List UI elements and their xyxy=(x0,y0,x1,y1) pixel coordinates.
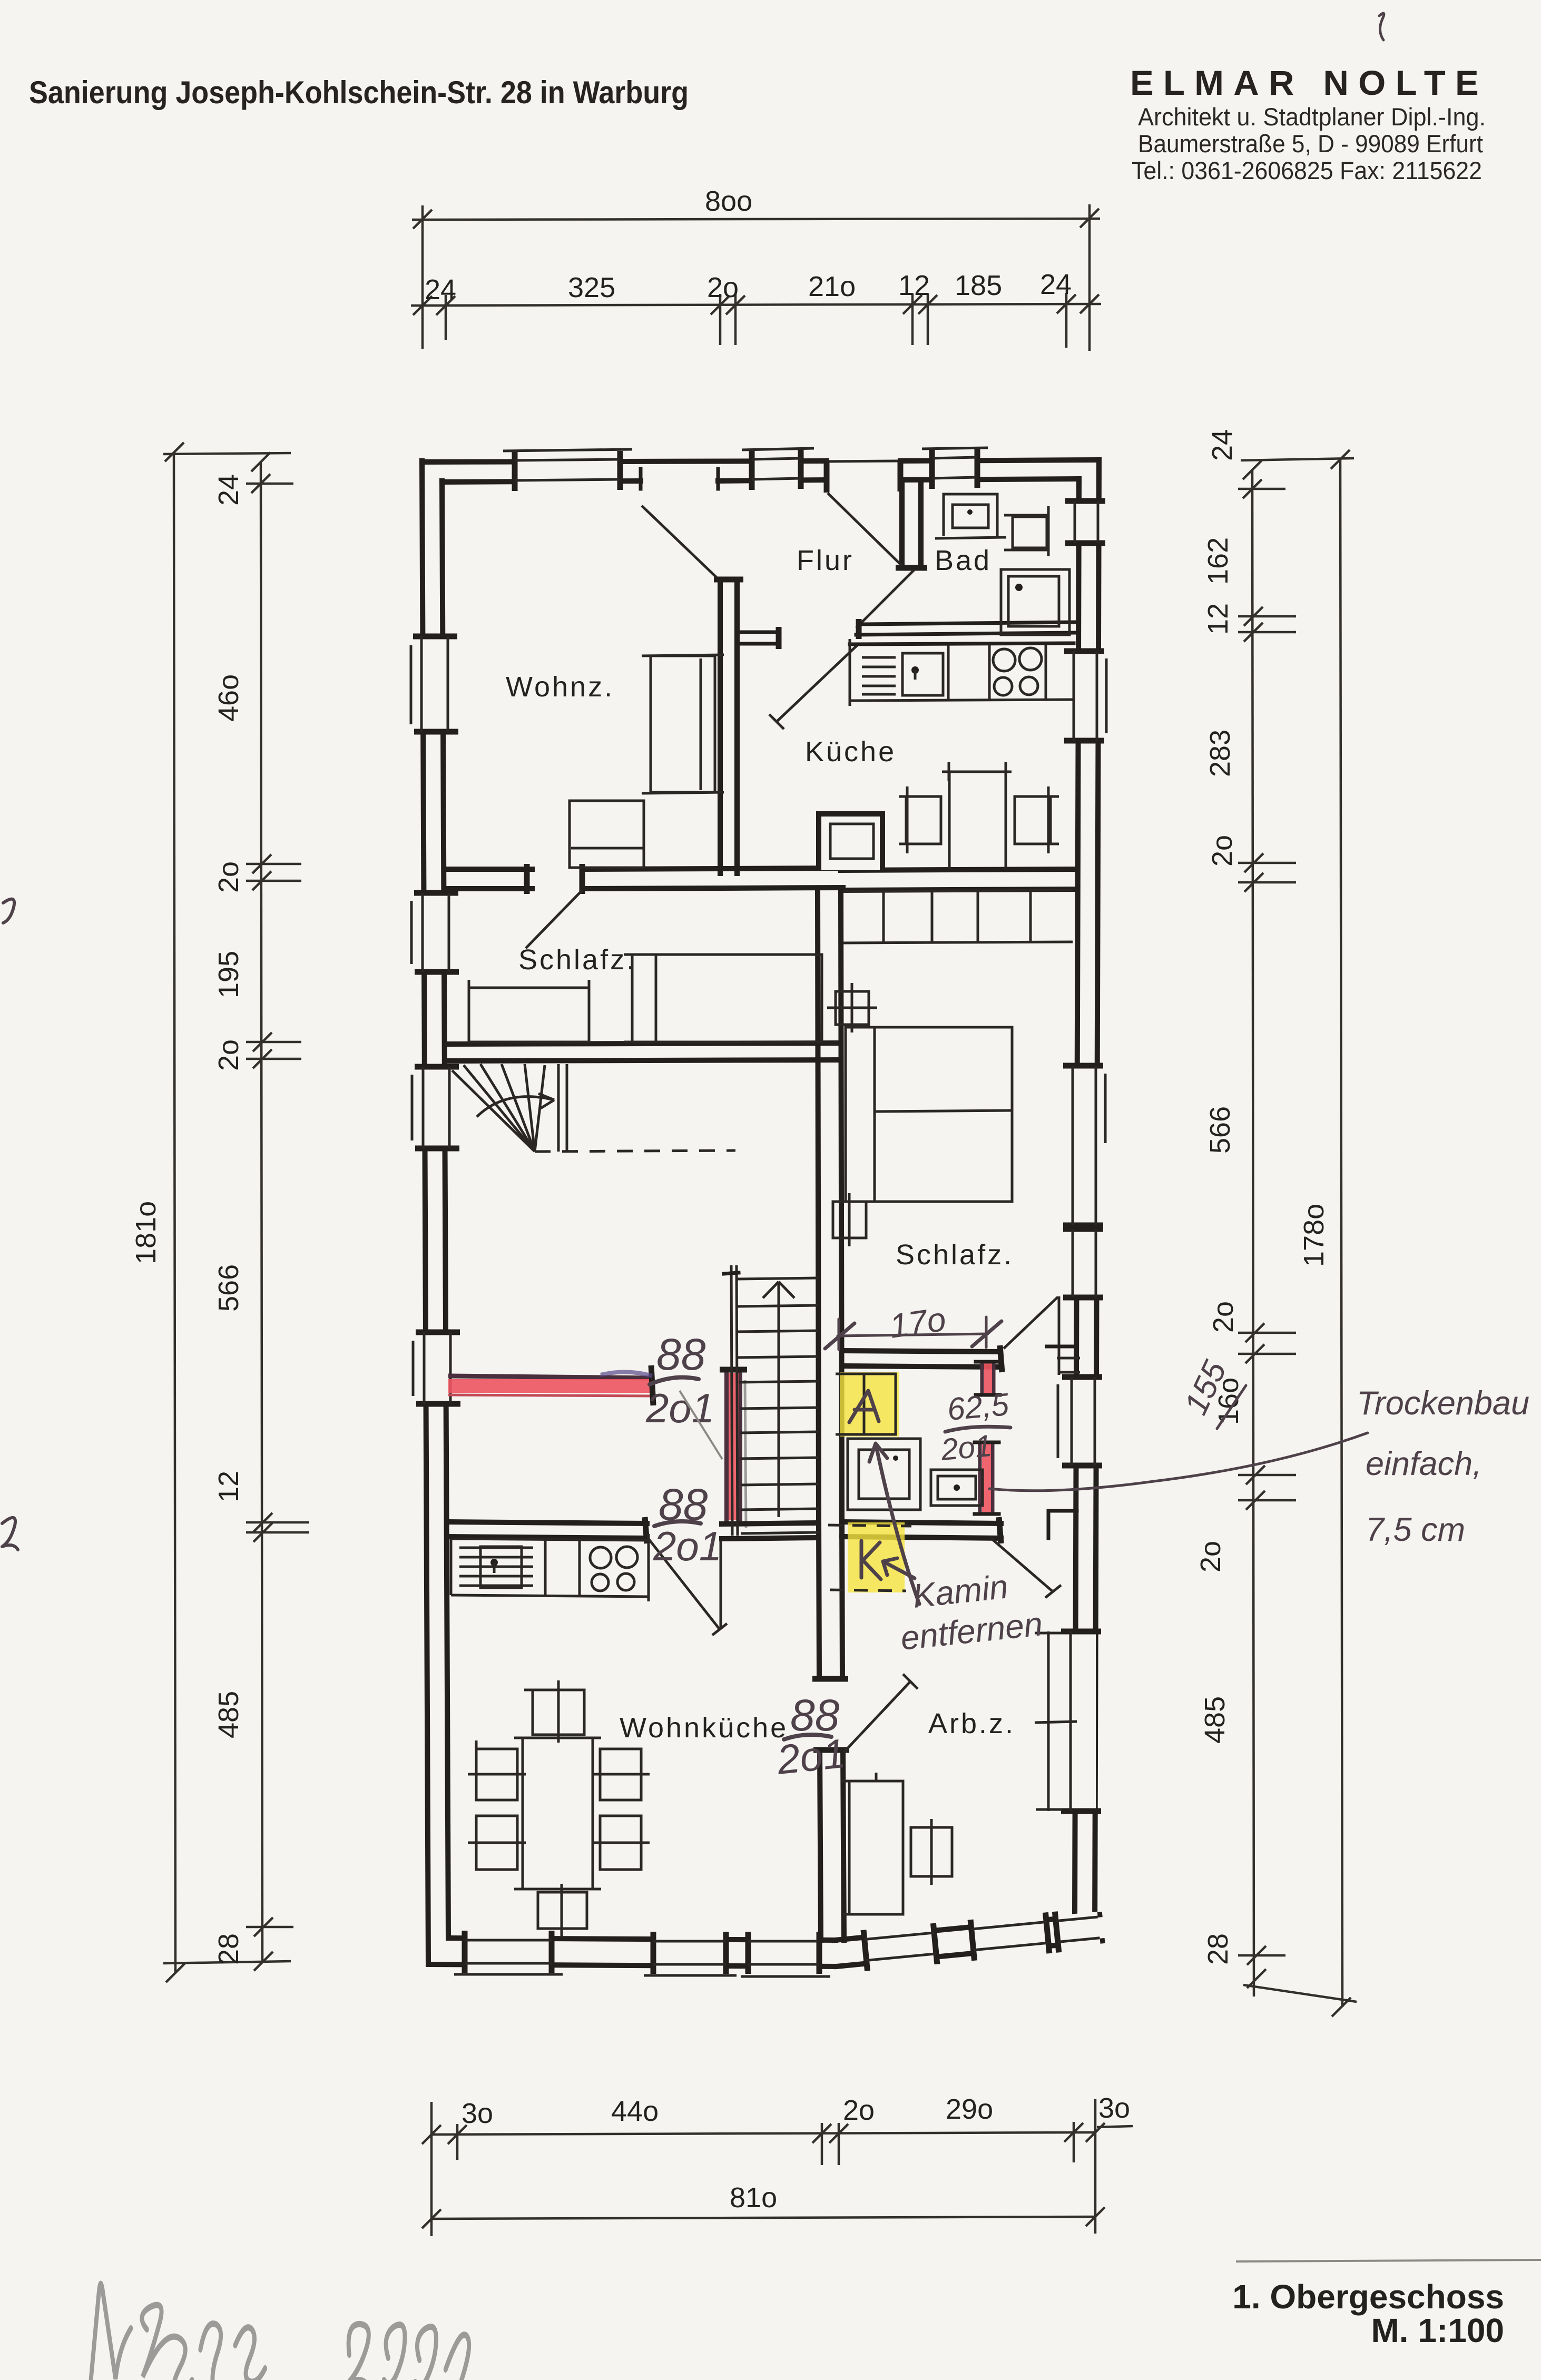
svg-text:46o: 46o xyxy=(213,674,244,722)
svg-text:Wohnküche: Wohnküche xyxy=(620,1712,788,1744)
svg-text:Küche: Küche xyxy=(805,736,896,768)
svg-text:12: 12 xyxy=(1202,603,1234,635)
svg-text:Architekt u. Stadtplaner Dipl: Architekt u. Stadtplaner Dipl.-Ing. xyxy=(1138,103,1486,131)
svg-text:81o: 81o xyxy=(730,2182,777,2214)
svg-text:Flur: Flur xyxy=(797,545,854,576)
svg-text:Baumerstraße 5, D - 99089 Erfu: Baumerstraße 5, D - 99089 Erfurt xyxy=(1138,130,1483,158)
svg-text:Sanierung Joseph-Kohlschein-St: Sanierung Joseph-Kohlschein-Str. 28 in W… xyxy=(29,75,689,110)
svg-text:325: 325 xyxy=(568,272,615,303)
svg-text:1. Obergeschoss: 1. Obergeschoss xyxy=(1232,2278,1504,2316)
svg-text:3o: 3o xyxy=(462,2098,493,2129)
svg-text:2o: 2o xyxy=(843,2094,875,2126)
svg-text:88: 88 xyxy=(656,1330,706,1379)
svg-text:28: 28 xyxy=(1202,1933,1234,1965)
svg-text:7,5 cm: 7,5 cm xyxy=(1366,1511,1465,1548)
svg-text:Bad: Bad xyxy=(935,545,992,576)
svg-text:M. 1:100: M. 1:100 xyxy=(1371,2312,1504,2349)
svg-text:24: 24 xyxy=(425,274,456,306)
svg-text:485: 485 xyxy=(213,1691,244,1738)
svg-text:28: 28 xyxy=(213,1933,244,1965)
svg-text:einfach,: einfach, xyxy=(1366,1445,1482,1482)
svg-text:Schlafz.: Schlafz. xyxy=(518,944,636,976)
svg-text:185: 185 xyxy=(955,270,1002,301)
svg-text:485: 485 xyxy=(1199,1696,1231,1744)
svg-text:24: 24 xyxy=(1206,429,1238,461)
svg-text:566: 566 xyxy=(213,1264,244,1312)
svg-text:195: 195 xyxy=(213,951,244,998)
svg-text:178o: 178o xyxy=(1298,1204,1330,1267)
svg-text:Schlafz.: Schlafz. xyxy=(896,1239,1014,1271)
svg-text:8oo: 8oo xyxy=(705,185,752,217)
svg-text:2o: 2o xyxy=(707,272,739,303)
svg-text:2o: 2o xyxy=(213,1039,244,1071)
svg-text:62,5: 62,5 xyxy=(946,1386,1010,1427)
svg-text:566: 566 xyxy=(1204,1106,1236,1154)
svg-text:ELMAR NOLTE: ELMAR NOLTE xyxy=(1130,63,1488,102)
svg-text:283: 283 xyxy=(1204,730,1236,777)
svg-text:Arb.z.: Arb.z. xyxy=(928,1708,1015,1739)
svg-text:21o: 21o xyxy=(808,271,856,302)
svg-text:Trockenbau: Trockenbau xyxy=(1357,1385,1529,1422)
svg-text:17o: 17o xyxy=(887,1300,948,1345)
svg-text:2o: 2o xyxy=(1208,1301,1239,1333)
svg-text:162: 162 xyxy=(1202,537,1234,585)
svg-text:44o: 44o xyxy=(611,2096,659,2127)
svg-text:2o1: 2o1 xyxy=(774,1730,848,1783)
svg-text:2o1: 2o1 xyxy=(939,1429,993,1467)
svg-text:3o: 3o xyxy=(1098,2092,1130,2124)
svg-text:2o: 2o xyxy=(1195,1541,1226,1572)
svg-text:24: 24 xyxy=(213,474,244,506)
svg-text:24: 24 xyxy=(1040,269,1072,300)
svg-text:181o: 181o xyxy=(130,1201,162,1264)
svg-text:29o: 29o xyxy=(946,2093,993,2125)
svg-text:Tel.: 0361-2606825 Fax: 211562: Tel.: 0361-2606825 Fax: 2115622 xyxy=(1132,156,1482,184)
svg-text:12: 12 xyxy=(898,270,930,301)
svg-text:2o1: 2o1 xyxy=(653,1523,722,1569)
svg-text:2o: 2o xyxy=(213,861,244,893)
svg-text:12: 12 xyxy=(213,1471,244,1502)
svg-text:Wohnz.: Wohnz. xyxy=(506,671,614,703)
svg-text:2o: 2o xyxy=(1206,835,1238,867)
